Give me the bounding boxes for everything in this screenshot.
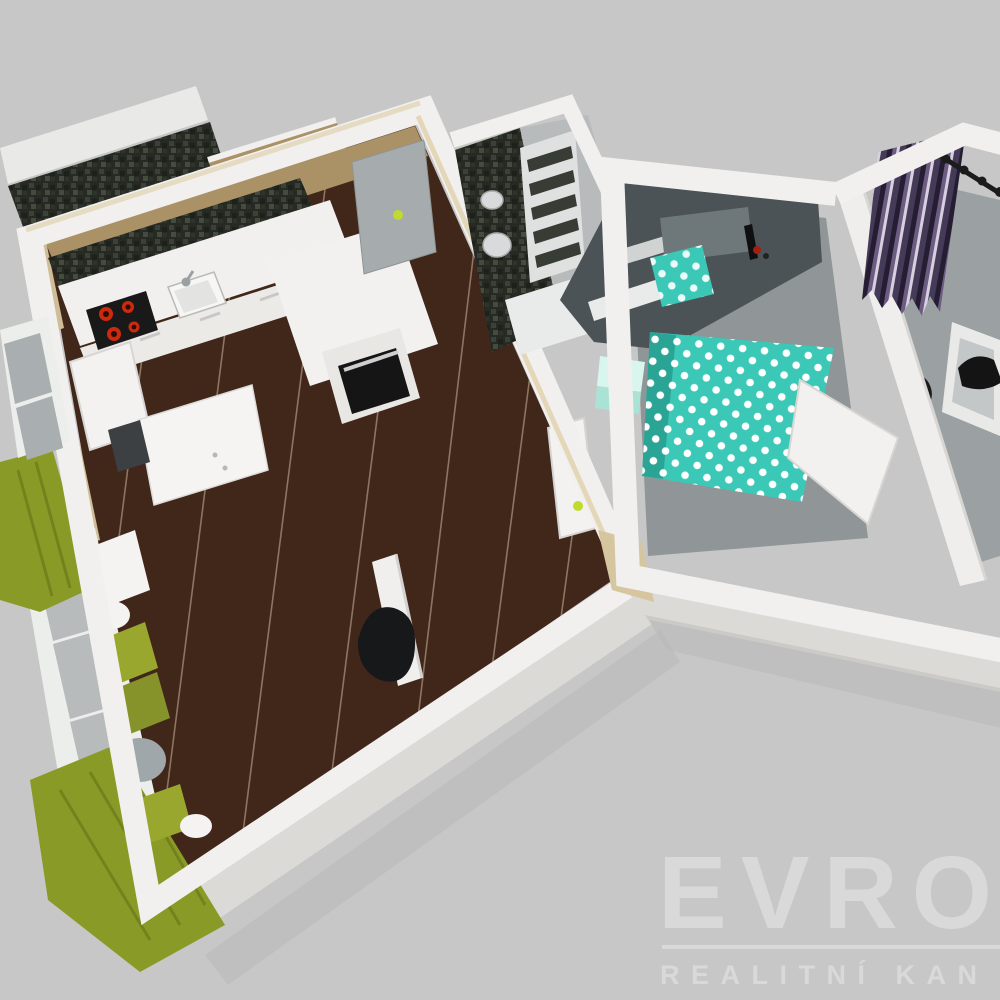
toilet bbox=[483, 233, 511, 257]
drawer-knob bbox=[213, 453, 218, 458]
door-label-dot bbox=[393, 210, 403, 220]
floor-cushion-white bbox=[180, 814, 212, 838]
washbasin bbox=[481, 191, 503, 209]
watermark-brand-text: EVRO bbox=[658, 835, 1000, 950]
floorplan-3d-render: EVRO REALITNÍ KAN bbox=[0, 0, 1000, 1000]
watermark: EVRO REALITNÍ KAN bbox=[658, 835, 1000, 990]
screenshot-root: EVRO REALITNÍ KAN bbox=[0, 0, 1000, 1000]
shelf-decor-red bbox=[753, 246, 761, 254]
curtain-ring bbox=[978, 177, 987, 186]
watermark-subtitle-text: REALITNÍ KAN bbox=[660, 959, 989, 990]
shelf-decor-dark bbox=[763, 253, 769, 259]
open-door-gray bbox=[352, 140, 436, 274]
door-label-dot bbox=[573, 501, 583, 511]
curtain-ring bbox=[960, 166, 969, 175]
drawer-knob bbox=[223, 466, 228, 471]
